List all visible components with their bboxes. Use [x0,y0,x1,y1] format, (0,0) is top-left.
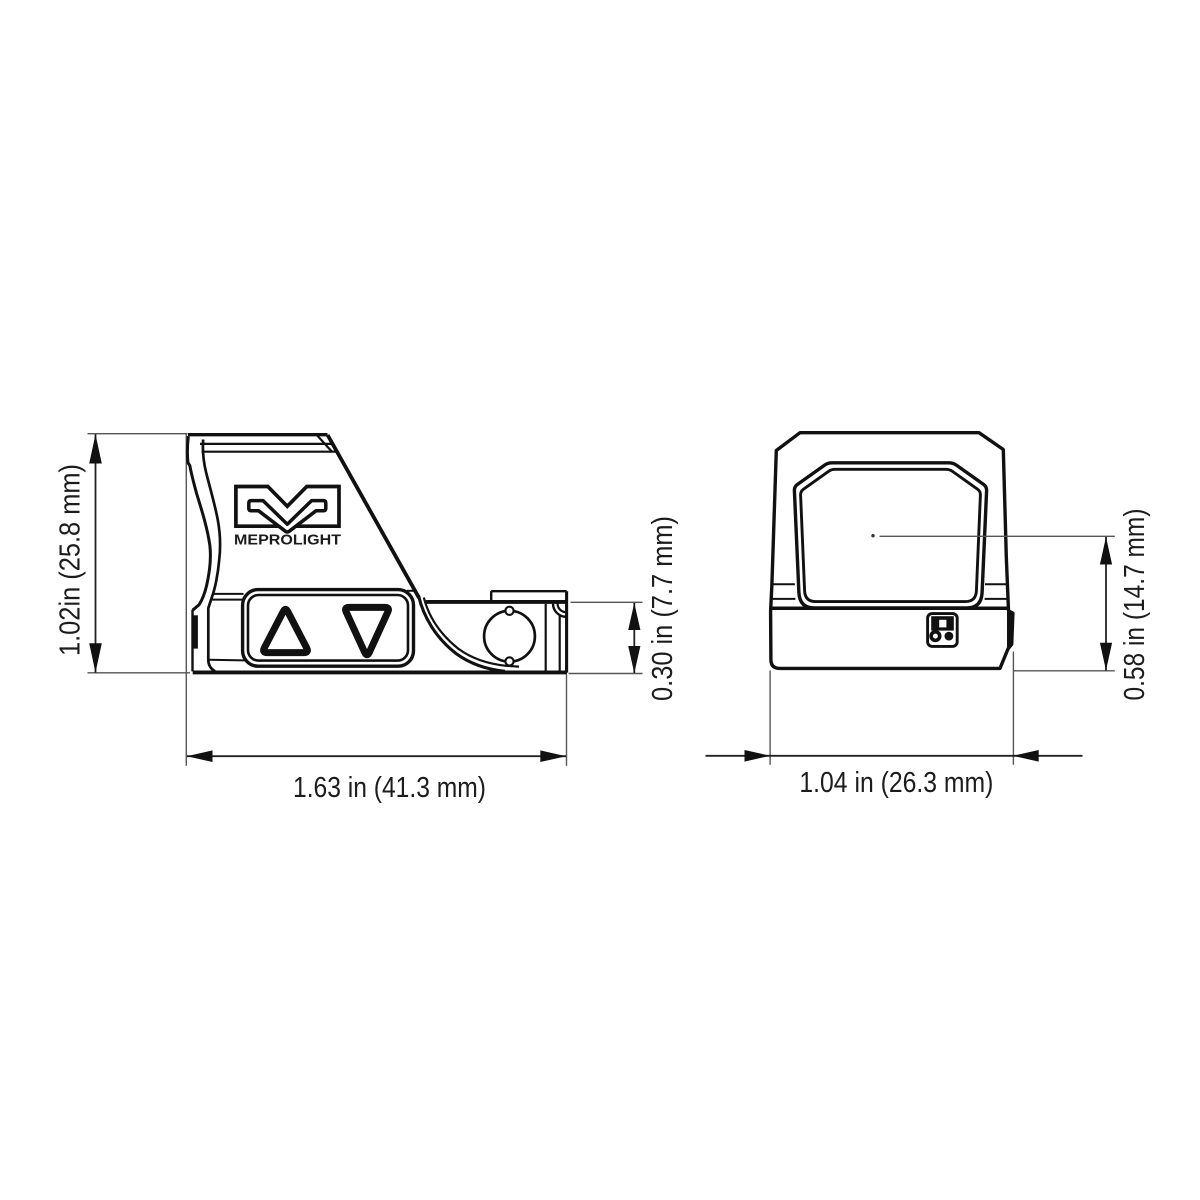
svg-text:0.30 in (7.7 mm): 0.30 in (7.7 mm) [647,516,679,701]
svg-text:1.63 in (41.3 mm): 1.63 in (41.3 mm) [293,772,486,804]
svg-text:1.04 in (26.3 mm): 1.04 in (26.3 mm) [799,767,993,799]
svg-text:MEPROLIGHT: MEPROLIGHT [234,532,341,549]
svg-text:0.58 in (14.7 mm): 0.58 in (14.7 mm) [1119,509,1151,701]
svg-text:1.02in (25.8 mm): 1.02in (25.8 mm) [54,464,86,656]
